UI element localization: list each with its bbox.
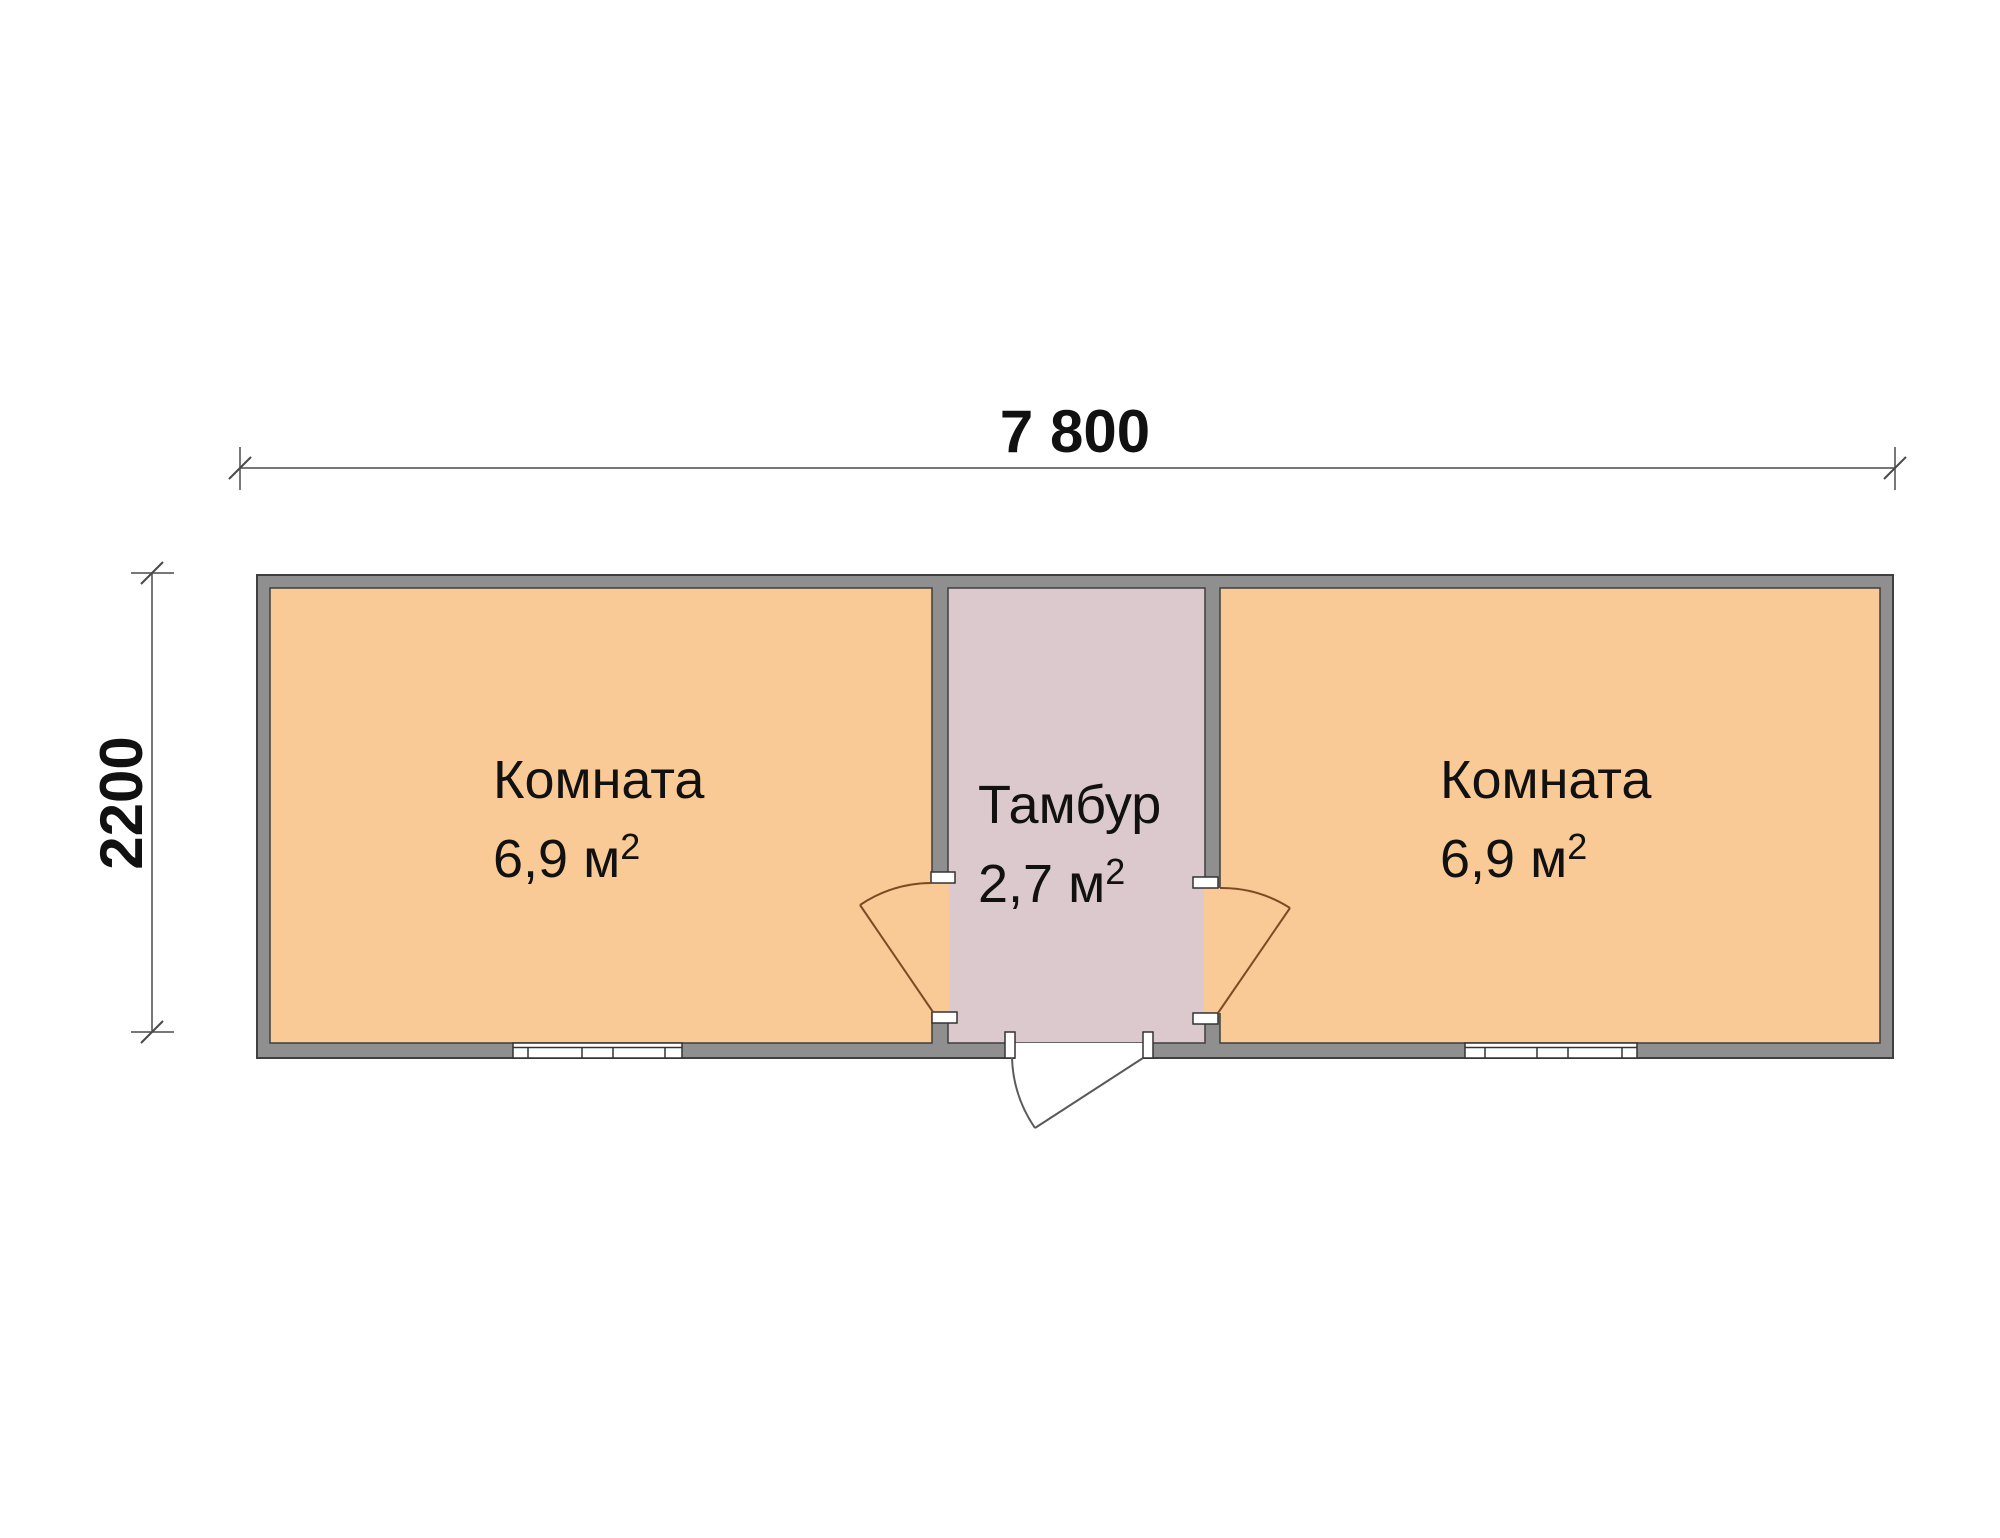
entrance-door-right-jamb bbox=[1143, 1032, 1153, 1058]
left-door-bottom-jamb bbox=[932, 1012, 957, 1023]
room-right-name: Комната bbox=[1440, 741, 1651, 820]
floor-plan-canvas: 7 800 2200 Комната 6,9 м2 Тамбур 2,7 м2 … bbox=[0, 0, 2000, 1538]
room-right-label: Комната 6,9 м2 bbox=[1440, 741, 1651, 899]
entrance-door-leaf bbox=[1035, 1058, 1143, 1128]
dimension-height-label: 2200 bbox=[92, 573, 152, 1033]
tambour-label: Тамбур 2,7 м2 bbox=[978, 766, 1161, 924]
room-left-area: 6,9 м2 bbox=[493, 820, 704, 899]
dimension-width-label: 7 800 bbox=[875, 402, 1275, 462]
right-door-top-jamb bbox=[1193, 877, 1218, 888]
tambour-area: 2,7 м2 bbox=[978, 845, 1161, 924]
left-door-top-jamb bbox=[931, 872, 955, 883]
left-door-opening bbox=[930, 883, 949, 1012]
entrance-door-left-jamb bbox=[1005, 1032, 1015, 1058]
room-right-area: 6,9 м2 bbox=[1440, 820, 1651, 899]
window-left bbox=[513, 1043, 682, 1058]
entrance-door bbox=[1012, 1058, 1143, 1128]
room-left-name: Комната bbox=[493, 741, 704, 820]
entrance-door-opening bbox=[1015, 1043, 1143, 1059]
entrance-door-arc bbox=[1012, 1058, 1035, 1128]
room-left-label: Комната 6,9 м2 bbox=[493, 741, 704, 899]
window-right bbox=[1465, 1043, 1637, 1058]
tambour-name: Тамбур bbox=[978, 766, 1161, 845]
right-door-bottom-jamb bbox=[1193, 1013, 1218, 1024]
right-door-opening bbox=[1204, 888, 1222, 1013]
